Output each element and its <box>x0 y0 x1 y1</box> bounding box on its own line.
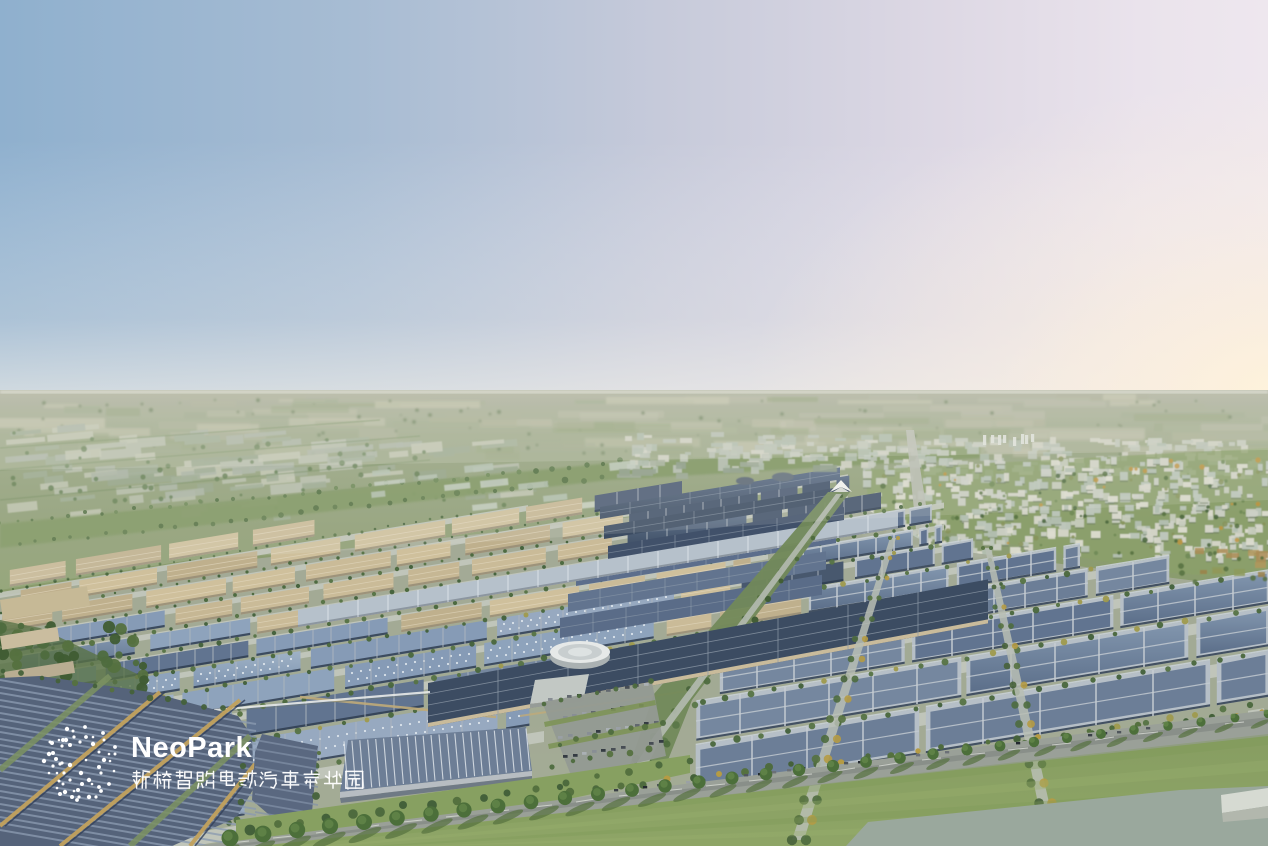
svg-text:NeoPark: NeoPark <box>131 732 253 764</box>
